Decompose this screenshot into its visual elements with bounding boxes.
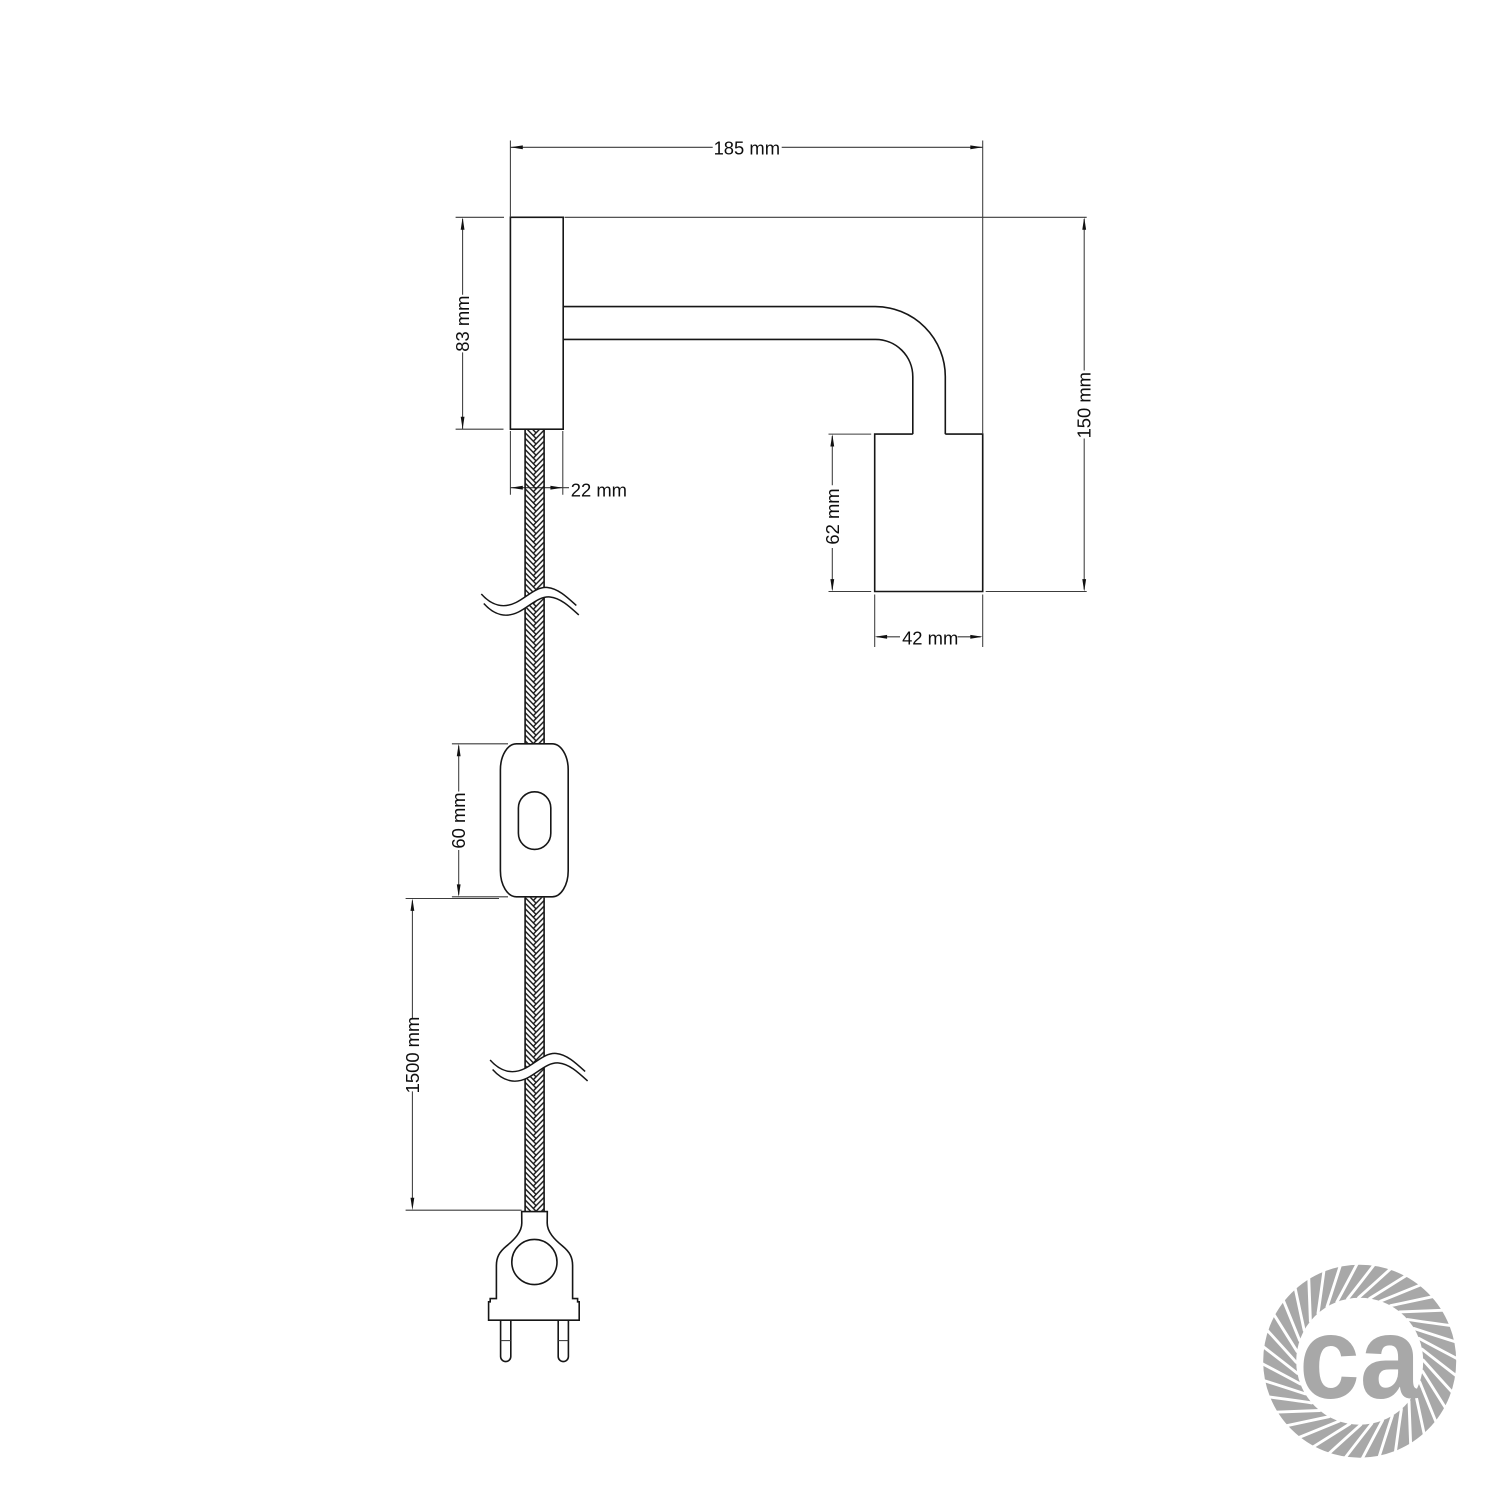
svg-text:150 mm: 150 mm — [1074, 372, 1095, 438]
svg-text:185 mm: 185 mm — [714, 138, 780, 159]
svg-text:62 mm: 62 mm — [822, 488, 843, 544]
svg-text:1500 mm: 1500 mm — [402, 1017, 423, 1094]
svg-text:83 mm: 83 mm — [452, 295, 473, 351]
svg-text:60 mm: 60 mm — [448, 792, 469, 848]
svg-text:22 mm: 22 mm — [571, 480, 627, 501]
svg-text:ca: ca — [1299, 1292, 1421, 1422]
svg-text:42 mm: 42 mm — [902, 627, 958, 648]
